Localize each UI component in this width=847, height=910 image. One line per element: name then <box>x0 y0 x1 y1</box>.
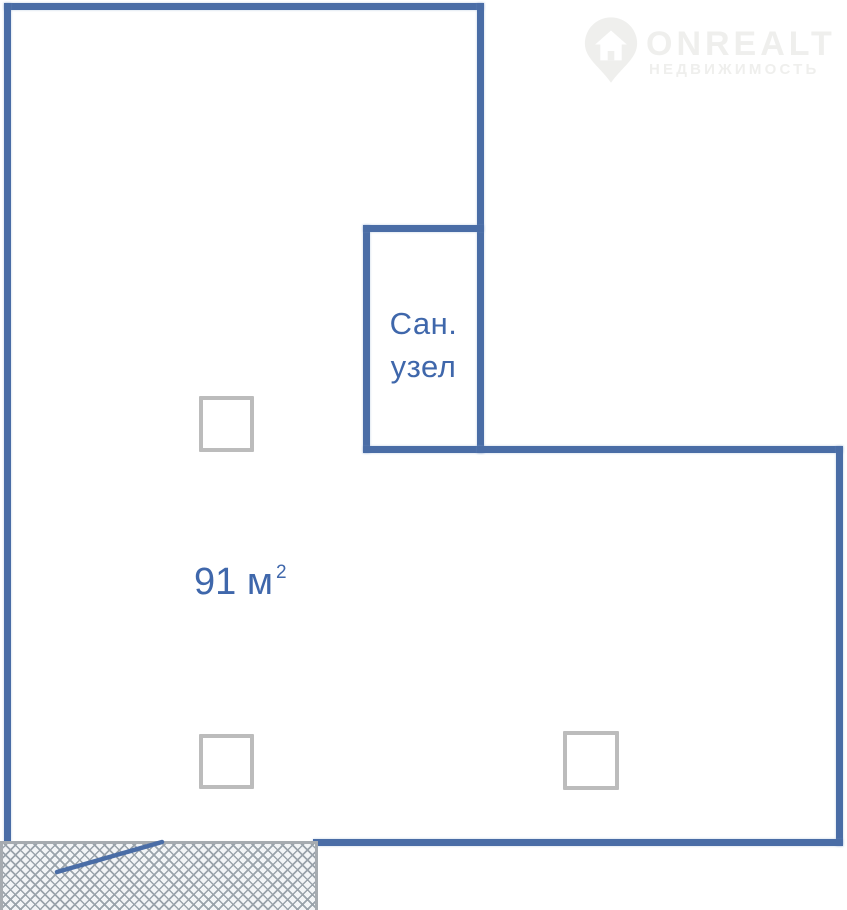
column-square-top-left <box>199 396 254 452</box>
bathroom-label-line1: Сан. <box>370 302 477 345</box>
area-superscript: 2 <box>276 553 287 593</box>
area-value: 91 м <box>194 561 273 603</box>
wall-divider-right <box>477 446 843 453</box>
wall-bottom <box>313 839 843 846</box>
area-label: 91 м2 <box>194 562 287 609</box>
watermark-logo: ONREALT НЕДВИЖИМОСТЬ <box>575 14 835 90</box>
watermark-subtitle: НЕДВИЖИМОСТЬ <box>649 61 819 78</box>
wall-left <box>4 3 11 842</box>
entrance-hatched-area <box>0 841 318 910</box>
column-square-bottom-left <box>199 734 254 789</box>
bathroom-wall-top <box>363 225 484 232</box>
wall-top <box>4 3 484 10</box>
watermark-brand: ONREALT <box>646 25 836 64</box>
door-swing-line <box>0 0 847 910</box>
wall-right <box>836 446 843 846</box>
bathroom-wall-left <box>363 225 370 453</box>
bathroom-wall-bottom <box>363 446 484 453</box>
house-pin-icon <box>583 17 639 85</box>
floor-plan: ONREALT НЕДВИЖИМОСТЬ Сан. узел 91 м2 <box>0 0 847 910</box>
column-square-bottom-right <box>563 731 619 790</box>
bathroom-label-line2: узел <box>370 345 477 388</box>
bathroom-label: Сан. узел <box>370 302 477 388</box>
